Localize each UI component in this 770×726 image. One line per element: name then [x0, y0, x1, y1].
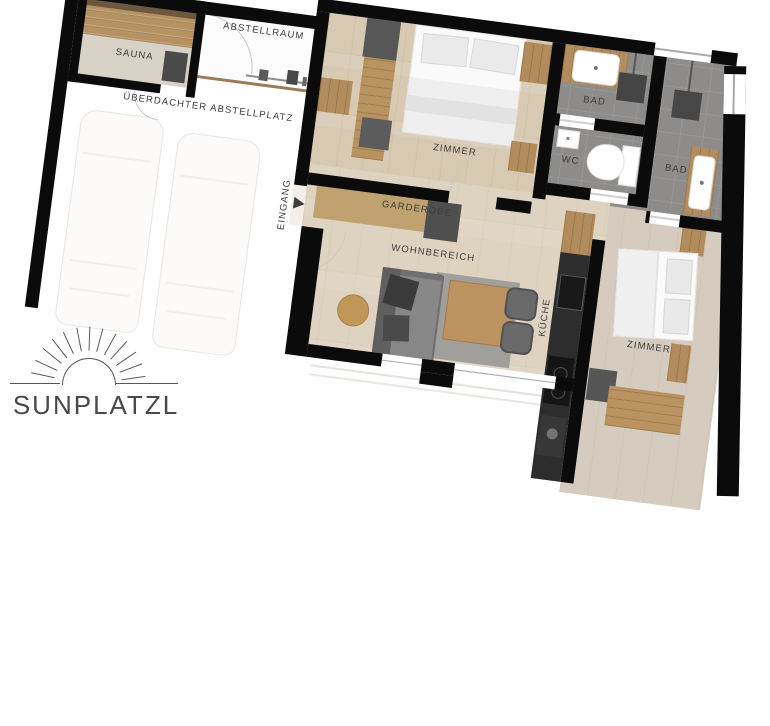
- car-outline: [54, 108, 166, 334]
- wardrobe-dark-unit: [362, 18, 401, 61]
- drain: [566, 137, 569, 140]
- dining-chair: [503, 286, 539, 322]
- nightstand: [508, 141, 538, 174]
- kitchen-sink: [556, 274, 586, 311]
- horizon-line: [10, 383, 60, 384]
- dining-chair: [499, 320, 535, 356]
- shower-head: [671, 89, 702, 120]
- sun-ray-icon: [116, 352, 137, 366]
- sun-ray-icon: [52, 339, 68, 359]
- bed: [613, 248, 698, 341]
- sink: [571, 49, 621, 87]
- sofa-cushion: [383, 315, 410, 342]
- sun-ray-icon: [31, 372, 55, 378]
- sun-ray-icon: [96, 328, 103, 352]
- room-label-wc: WC: [561, 154, 580, 167]
- duvet: [614, 249, 657, 337]
- sun-ray-icon: [122, 376, 146, 381]
- sun-ray-icon: [43, 348, 62, 364]
- pillow: [662, 298, 690, 335]
- pillow: [469, 38, 519, 75]
- bed: [402, 24, 527, 147]
- sun-logo: SUNPLATZL: [8, 328, 188, 400]
- sofa: [371, 267, 444, 366]
- sun-ray-icon: [35, 360, 57, 371]
- oven-dial: [546, 428, 558, 440]
- entrance-arrow-icon: [293, 197, 305, 210]
- sun-ray-icon: [76, 328, 82, 352]
- sauna-heater: [161, 51, 188, 84]
- pillow: [665, 258, 693, 295]
- gate-bracket: [258, 69, 268, 81]
- bench: [317, 77, 353, 115]
- car-outline: [151, 131, 263, 357]
- drain: [594, 66, 598, 70]
- pillow: [421, 33, 470, 67]
- wc-sink: [556, 129, 580, 150]
- sun-ray-icon: [63, 332, 74, 354]
- sun-ray-icon: [110, 341, 127, 360]
- sun-ray-icon: [89, 327, 91, 351]
- gate-latch: [286, 70, 299, 85]
- sun-ray-icon: [120, 363, 143, 373]
- logo-text: SUNPLATZL: [8, 390, 184, 421]
- sun-arc-icon: [62, 358, 116, 385]
- floorplan-page: { "floorplan": { "rooms": { "sauna": {"l…: [0, 0, 770, 400]
- dresser: [359, 117, 393, 151]
- shower-head: [616, 72, 647, 103]
- drain: [699, 181, 703, 185]
- wall: [555, 376, 575, 391]
- horizon-line: [116, 383, 178, 384]
- oven: [536, 415, 567, 458]
